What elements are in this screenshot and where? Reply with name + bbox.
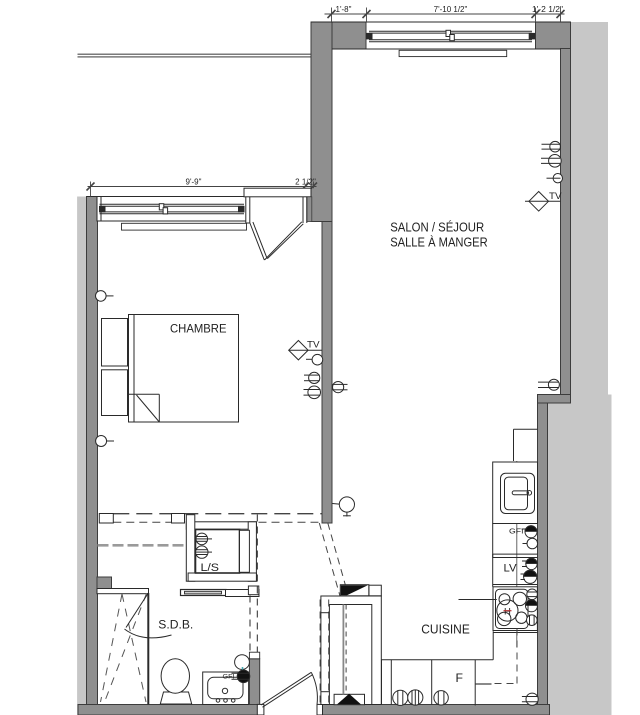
svg-text:SALON / SÉJOUR: SALON / SÉJOUR xyxy=(390,220,484,235)
svg-text:7'-10 1/2": 7'-10 1/2" xyxy=(434,5,468,14)
svg-text:1'-8": 1'-8" xyxy=(336,5,352,14)
svg-text:L/S: L/S xyxy=(201,562,220,574)
svg-text:CHAMBRE: CHAMBRE xyxy=(170,322,227,336)
svg-text:LV: LV xyxy=(504,562,517,574)
svg-text:CUISINE: CUISINE xyxy=(421,622,470,636)
svg-text:9'-9": 9'-9" xyxy=(186,178,202,187)
svg-text:TV: TV xyxy=(549,191,562,201)
svg-text:1'-2 1/2": 1'-2 1/2" xyxy=(532,5,563,14)
svg-text:GFI: GFI xyxy=(223,673,235,680)
svg-text:TV: TV xyxy=(307,339,320,349)
svg-text:S.D.B.: S.D.B. xyxy=(158,618,193,632)
svg-text:H: H xyxy=(504,606,511,617)
svg-text:F: F xyxy=(456,671,463,685)
svg-text:SALLE À MANGER: SALLE À MANGER xyxy=(390,235,488,250)
svg-text:2 1/2": 2 1/2" xyxy=(295,178,316,187)
svg-text:GFI: GFI xyxy=(509,527,524,536)
